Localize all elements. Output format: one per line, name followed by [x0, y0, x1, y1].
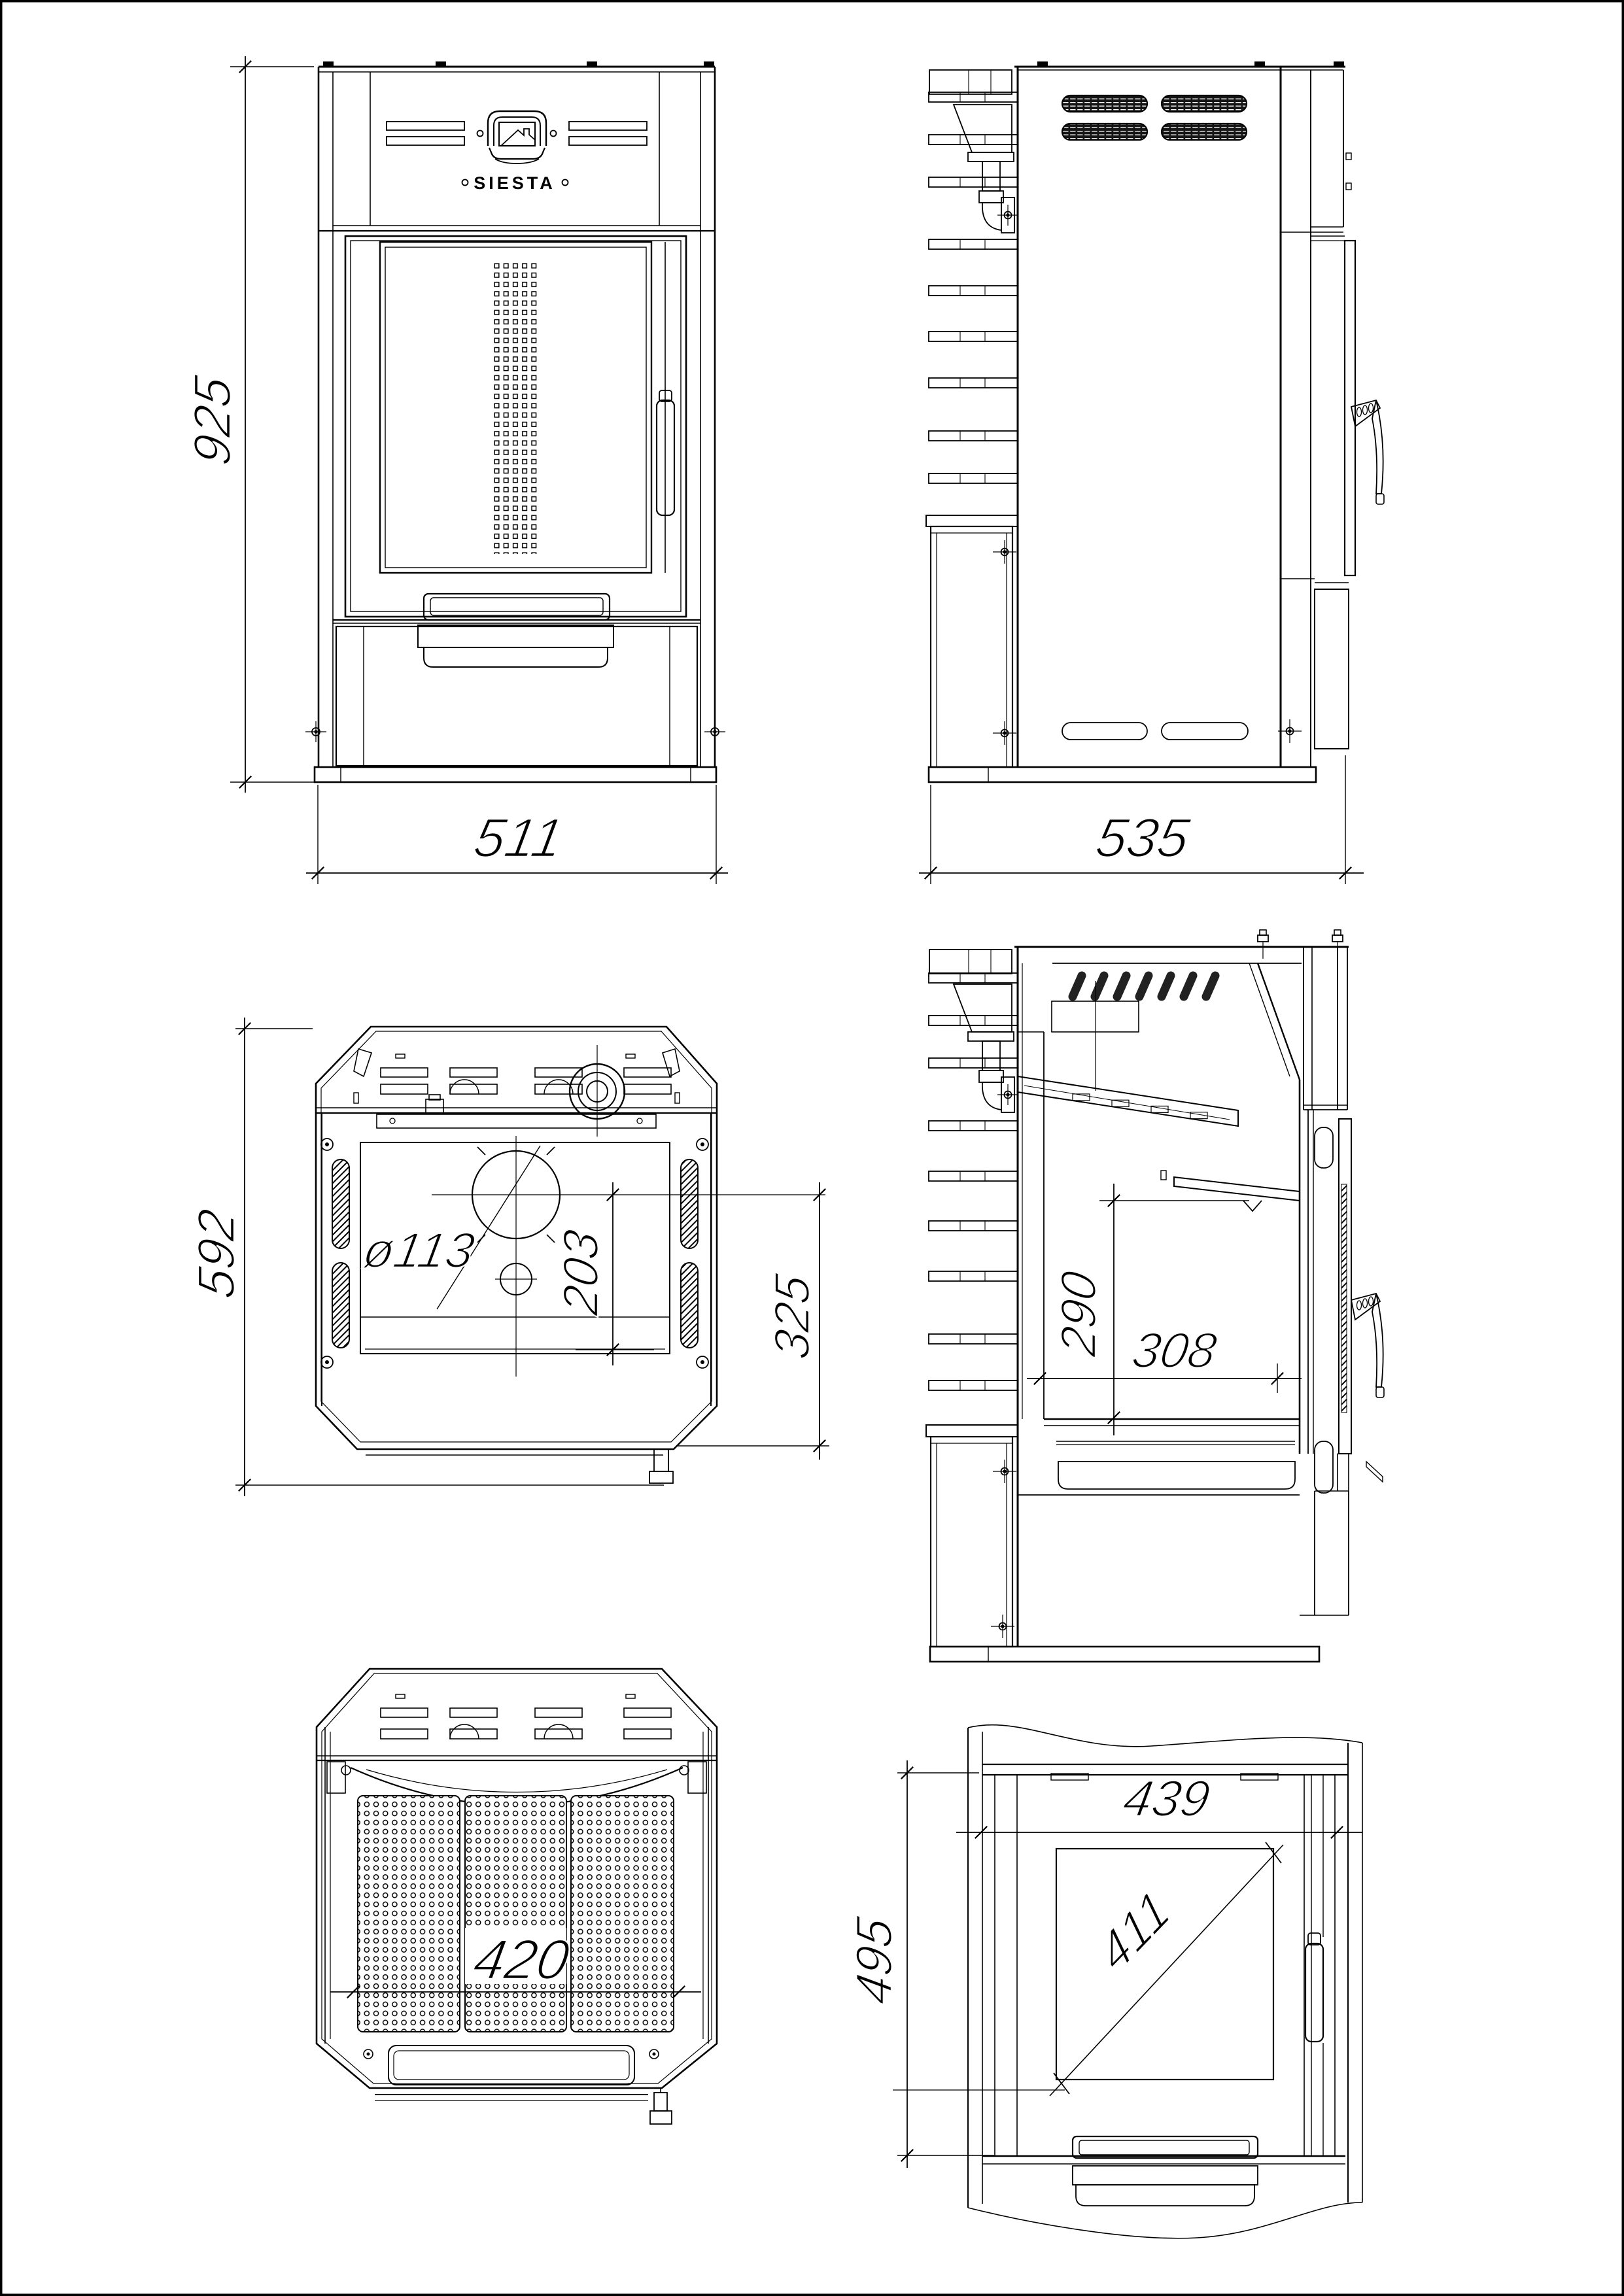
svg-text:439: 439 — [1119, 1770, 1215, 1827]
svg-text:925: 925 — [184, 371, 242, 470]
svg-text:290: 290 — [1052, 1267, 1107, 1361]
svg-text:203: 203 — [554, 1226, 609, 1320]
svg-text:495: 495 — [846, 1913, 903, 2008]
svg-text:308: 308 — [1128, 1324, 1221, 1379]
svg-text:SIESTA: SIESTA — [474, 173, 556, 193]
svg-text:511: 511 — [470, 807, 568, 868]
svg-text:420: 420 — [469, 1929, 574, 1991]
svg-text:ø113: ø113 — [359, 1224, 478, 1278]
svg-text:325: 325 — [765, 1270, 820, 1363]
svg-text:535: 535 — [1092, 807, 1195, 868]
svg-text:592: 592 — [188, 1205, 246, 1303]
